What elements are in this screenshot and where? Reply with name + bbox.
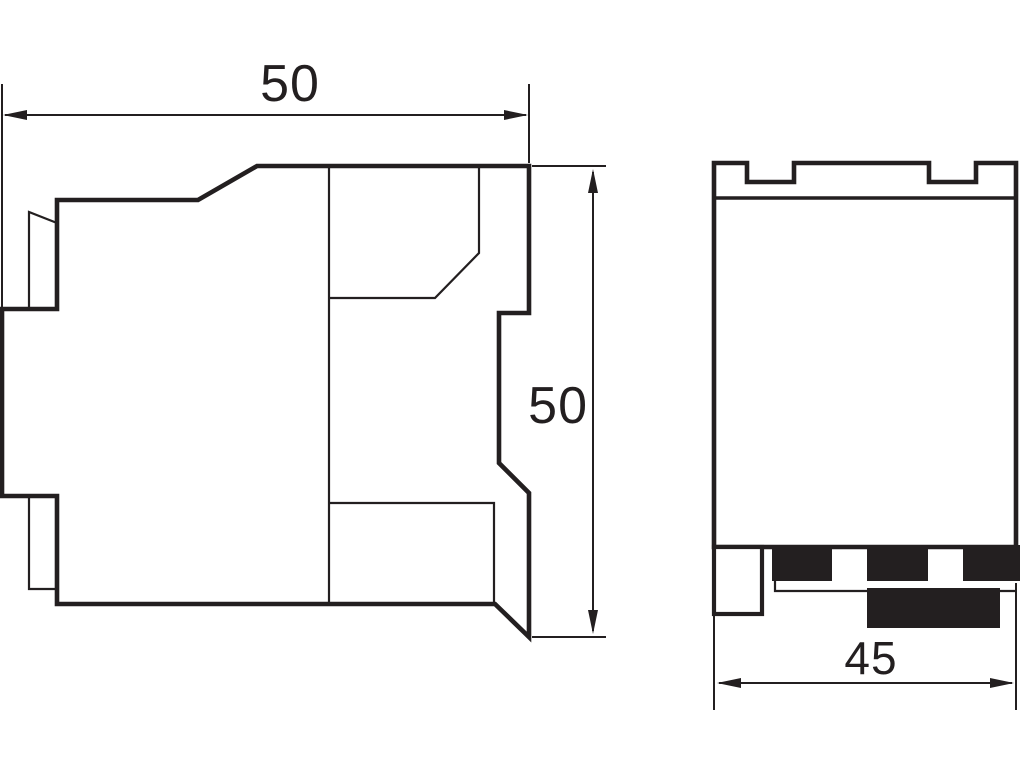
side-view-outline [2, 166, 529, 637]
side-view-top-clip [29, 212, 57, 308]
front-width-dimension-label: 45 [844, 632, 897, 684]
arrowhead-down-icon [588, 610, 598, 634]
side-view-bottom-clip [29, 497, 57, 589]
side-view [2, 166, 529, 637]
side-height-dimension: 50 [528, 166, 606, 637]
arrowhead-right-icon [990, 678, 1014, 688]
arrowhead-left-icon [717, 678, 741, 688]
technical-drawing-canvas: 50 50 [0, 0, 1024, 768]
front-view-outline [714, 163, 1016, 547]
dimension-drawing: 50 50 [0, 0, 1024, 768]
terminal-block-lower [867, 588, 1000, 628]
front-view [714, 163, 1020, 628]
terminal-block-1 [772, 545, 832, 581]
terminal-block-2 [867, 545, 928, 581]
arrowhead-right-icon [504, 110, 528, 120]
terminal-block-3 [963, 545, 1020, 581]
side-width-dimension-label: 50 [260, 55, 320, 113]
arrowhead-up-icon [588, 169, 598, 193]
side-height-dimension-label: 50 [528, 377, 588, 435]
side-view-lower-panel [329, 503, 494, 602]
side-width-dimension: 50 [2, 55, 529, 307]
front-view-din-foot [714, 547, 762, 614]
side-view-upper-window [329, 167, 479, 298]
arrowhead-left-icon [3, 110, 27, 120]
